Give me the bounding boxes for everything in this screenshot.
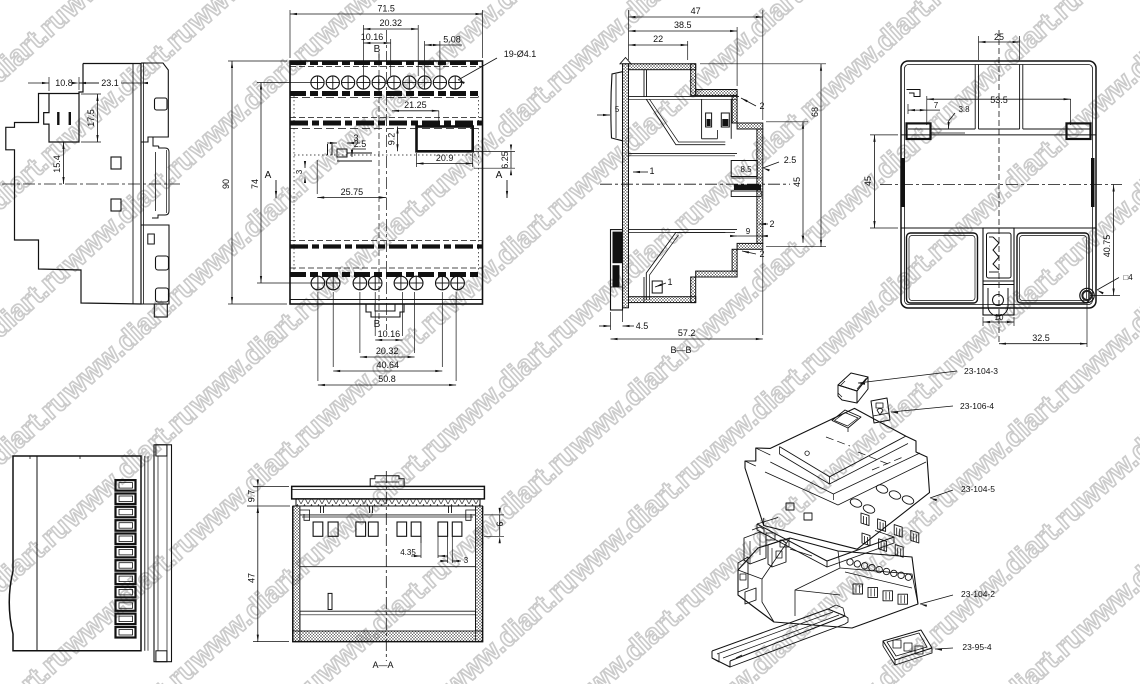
svg-text:20.9: 20.9 [436, 153, 454, 163]
svg-text:23.1: 23.1 [101, 78, 119, 88]
svg-text:5.08: 5.08 [443, 35, 461, 45]
svg-text:23-95-4: 23-95-4 [962, 642, 992, 652]
svg-text:10: 10 [995, 313, 1004, 322]
svg-text:20.32: 20.32 [380, 18, 403, 28]
svg-text:9: 9 [746, 227, 751, 236]
svg-text:7: 7 [934, 101, 939, 110]
svg-text:9.7: 9.7 [247, 490, 257, 503]
svg-text:□4: □4 [1123, 273, 1133, 282]
svg-text:68: 68 [810, 107, 820, 117]
svg-text:B—B: B—B [670, 345, 691, 355]
svg-text:25.75: 25.75 [341, 187, 364, 197]
svg-text:2: 2 [759, 101, 764, 111]
svg-text:57.2: 57.2 [678, 328, 696, 338]
svg-text:23-104-5: 23-104-5 [961, 484, 995, 494]
svg-text:6.25: 6.25 [500, 151, 510, 169]
svg-text:1: 1 [649, 166, 654, 176]
svg-text:17.5: 17.5 [86, 109, 96, 127]
svg-text:2.5: 2.5 [354, 139, 367, 149]
svg-text:B: B [374, 44, 381, 55]
svg-text:8.5: 8.5 [740, 165, 752, 174]
svg-text:47: 47 [691, 6, 701, 16]
svg-text:38.5: 38.5 [674, 20, 692, 30]
svg-text:2.5: 2.5 [784, 155, 797, 165]
svg-text:21.25: 21.25 [404, 100, 427, 110]
svg-text:5: 5 [615, 105, 620, 114]
svg-text:10.8: 10.8 [55, 78, 73, 88]
svg-text:A: A [265, 170, 272, 181]
svg-text:6: 6 [495, 521, 505, 526]
svg-text:25: 25 [994, 32, 1004, 42]
svg-text:40.64: 40.64 [377, 360, 400, 370]
svg-text:4.5: 4.5 [636, 321, 649, 331]
svg-text:23-106-4: 23-106-4 [960, 401, 994, 411]
svg-text:23-104-3: 23-104-3 [964, 366, 998, 376]
svg-text:10.16: 10.16 [378, 329, 401, 339]
svg-text:3: 3 [295, 169, 304, 174]
svg-text:4.35: 4.35 [400, 548, 416, 557]
svg-text:A: A [496, 170, 503, 181]
svg-text:32.5: 32.5 [1032, 333, 1050, 343]
svg-text:22: 22 [653, 34, 663, 44]
svg-text:3.8: 3.8 [958, 105, 970, 114]
svg-text:45: 45 [792, 177, 802, 187]
svg-text:20.32: 20.32 [376, 346, 399, 356]
svg-text:2: 2 [769, 219, 774, 229]
svg-text:1: 1 [667, 277, 672, 287]
svg-text:19-Ø4.1: 19-Ø4.1 [504, 49, 537, 59]
svg-text:10.16: 10.16 [361, 32, 384, 42]
svg-text:2: 2 [759, 249, 764, 259]
svg-text:3: 3 [464, 556, 469, 565]
svg-text:50.8: 50.8 [378, 374, 396, 384]
svg-text:53.5: 53.5 [990, 95, 1008, 105]
svg-text:47: 47 [247, 573, 257, 583]
svg-text:15.4: 15.4 [52, 155, 62, 173]
svg-text:40.75: 40.75 [1102, 235, 1112, 258]
svg-text:9.2: 9.2 [387, 133, 397, 146]
svg-text:74: 74 [250, 179, 260, 189]
svg-text:23-104-2: 23-104-2 [961, 589, 995, 599]
svg-text:45: 45 [863, 176, 873, 186]
svg-text:A—A: A—A [372, 660, 393, 670]
svg-text:71.5: 71.5 [377, 4, 395, 14]
svg-text:90: 90 [221, 179, 231, 189]
